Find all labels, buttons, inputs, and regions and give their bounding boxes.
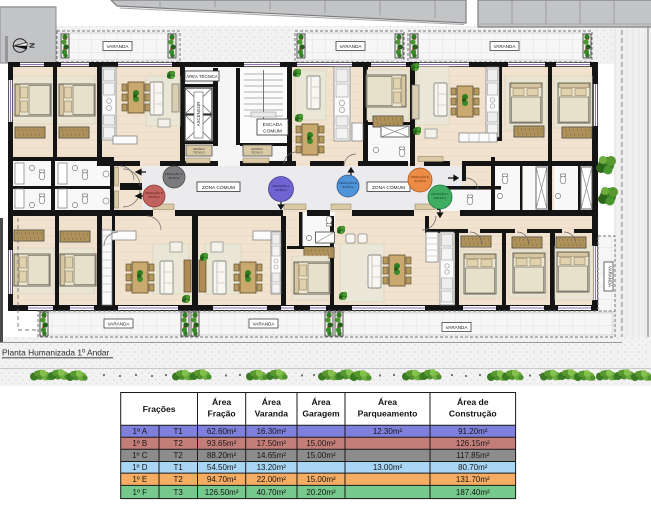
svg-text:ARMÁRIO: ARMÁRIO bbox=[251, 147, 263, 151]
svg-text:Planta Humanizada 1º Andar: Planta Humanizada 1º Andar bbox=[2, 348, 110, 358]
svg-text:T1: T1 bbox=[174, 427, 184, 436]
svg-text:Área de: Área de bbox=[457, 397, 489, 407]
svg-text:40.70m²: 40.70m² bbox=[257, 488, 287, 497]
svg-text:VARANDA: VARANDA bbox=[494, 44, 517, 49]
svg-text:80.70m²: 80.70m² bbox=[458, 463, 488, 472]
svg-text:VARANDA: VARANDA bbox=[108, 322, 131, 327]
svg-text:13.20m²: 13.20m² bbox=[257, 463, 287, 472]
svg-text:VARANDA: VARANDA bbox=[446, 325, 469, 330]
svg-text:62.60m²: 62.60m² bbox=[207, 427, 237, 436]
svg-text:T2: T2 bbox=[174, 451, 184, 460]
svg-text:91.20m²: 91.20m² bbox=[458, 427, 488, 436]
svg-text:16.30m²: 16.30m² bbox=[257, 427, 287, 436]
svg-text:12.30m²: 12.30m² bbox=[373, 427, 403, 436]
svg-text:Área: Área bbox=[262, 397, 281, 407]
svg-text:ASCENSOR: ASCENSOR bbox=[196, 102, 201, 127]
svg-text:Parqueamento: Parqueamento bbox=[358, 409, 418, 419]
svg-text:N: N bbox=[28, 43, 37, 48]
svg-text:ARMÁRIO: ARMÁRIO bbox=[193, 147, 205, 151]
svg-text:T2: T2 bbox=[174, 439, 184, 448]
svg-text:Área: Área bbox=[311, 397, 330, 407]
svg-text:COMUM: COMUM bbox=[263, 129, 282, 135]
svg-text:22.00m²: 22.00m² bbox=[257, 475, 287, 484]
svg-text:VARANDA: VARANDA bbox=[107, 44, 130, 49]
svg-text:88.20m²: 88.20m² bbox=[207, 451, 237, 460]
svg-text:Área: Área bbox=[212, 397, 231, 407]
svg-text:Varanda: Varanda bbox=[255, 409, 289, 419]
svg-text:ZONA COMUM: ZONA COMUM bbox=[202, 185, 235, 191]
svg-text:17.50m²: 17.50m² bbox=[257, 439, 287, 448]
svg-text:117.85m²: 117.85m² bbox=[456, 451, 490, 460]
svg-text:VARANDA: VARANDA bbox=[340, 44, 363, 49]
svg-text:ESCADA: ESCADA bbox=[263, 122, 284, 128]
svg-text:VARANDA: VARANDA bbox=[253, 322, 276, 327]
svg-text:Frações: Frações bbox=[143, 404, 176, 414]
svg-text:93.65m²: 93.65m² bbox=[207, 439, 237, 448]
svg-text:Fração: Fração bbox=[208, 409, 236, 419]
svg-text:T3: T3 bbox=[174, 488, 184, 497]
svg-text:1º E: 1º E bbox=[132, 475, 147, 484]
svg-text:13.00m²: 13.00m² bbox=[373, 463, 403, 472]
svg-text:62.60m²: 62.60m² bbox=[275, 188, 286, 192]
svg-text:Garagem: Garagem bbox=[302, 409, 340, 419]
svg-text:VARANDA: VARANDA bbox=[608, 266, 613, 287]
svg-text:1º B: 1º B bbox=[132, 439, 147, 448]
svg-text:Construção: Construção bbox=[449, 409, 497, 419]
svg-text:94.70m²: 94.70m² bbox=[207, 475, 237, 484]
svg-text:88.20m²: 88.20m² bbox=[168, 176, 179, 180]
svg-text:1º C: 1º C bbox=[132, 451, 148, 460]
svg-text:94.70m²: 94.70m² bbox=[414, 179, 425, 183]
svg-text:Área: Área bbox=[378, 397, 397, 407]
svg-text:ÁREA TÉCNICA: ÁREA TÉCNICA bbox=[186, 74, 218, 79]
svg-text:15.00m²: 15.00m² bbox=[306, 475, 336, 484]
svg-text:126.15m²: 126.15m² bbox=[456, 439, 490, 448]
svg-text:20.20m²: 20.20m² bbox=[306, 488, 336, 497]
svg-text:15.00m²: 15.00m² bbox=[306, 439, 336, 448]
svg-text:126.50m²: 126.50m² bbox=[205, 488, 239, 497]
svg-text:187.40m²: 187.40m² bbox=[456, 488, 490, 497]
svg-text:ZONA COMUM: ZONA COMUM bbox=[372, 185, 405, 191]
svg-text:1º D: 1º D bbox=[132, 463, 148, 472]
svg-text:131.70m²: 131.70m² bbox=[456, 475, 490, 484]
svg-text:54.50m²: 54.50m² bbox=[342, 185, 353, 189]
svg-text:1º F: 1º F bbox=[133, 488, 148, 497]
svg-text:T2: T2 bbox=[174, 475, 184, 484]
svg-text:T1: T1 bbox=[174, 463, 184, 472]
svg-text:54.50m²: 54.50m² bbox=[207, 463, 237, 472]
svg-text:93.65m²: 93.65m² bbox=[148, 195, 159, 199]
svg-text:15.00m²: 15.00m² bbox=[306, 451, 336, 460]
svg-text:14.65m²: 14.65m² bbox=[257, 451, 287, 460]
svg-text:1º A: 1º A bbox=[133, 427, 148, 436]
svg-text:126.50m²: 126.50m² bbox=[434, 196, 447, 200]
